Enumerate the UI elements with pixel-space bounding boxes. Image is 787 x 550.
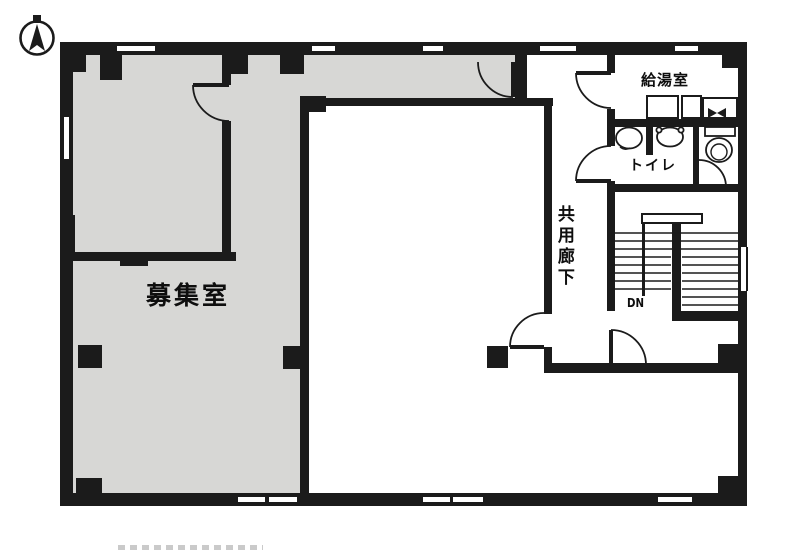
wall-segment — [60, 42, 747, 55]
window-mullion — [450, 495, 453, 504]
vacant-room-entry-strip — [304, 55, 516, 102]
column — [120, 258, 148, 266]
kitchenette-counter — [681, 95, 702, 119]
wall-segment — [544, 106, 552, 314]
wall-segment — [73, 252, 236, 261]
column — [60, 42, 86, 72]
window — [117, 44, 155, 53]
column — [718, 344, 744, 368]
window — [238, 495, 265, 504]
wall-segment — [607, 109, 615, 146]
floorplan-scan: 募集室 給湯室 トイレ 共用廊下 DN — [0, 0, 787, 550]
column — [300, 96, 326, 112]
window — [62, 117, 71, 159]
column — [280, 52, 304, 74]
kitchenette-sink — [702, 97, 738, 119]
stairs-direction-label: DN — [627, 297, 644, 310]
wall-segment — [544, 363, 747, 373]
column — [722, 42, 747, 68]
window — [312, 44, 335, 53]
wall-segment — [60, 493, 747, 506]
stair-divider-wall — [672, 222, 681, 312]
window — [423, 44, 443, 53]
column — [76, 478, 102, 506]
room-label-vacant: 募集室 — [146, 283, 230, 309]
wall-segment — [611, 119, 747, 127]
cropped-caption-remnant — [118, 545, 263, 550]
window — [269, 495, 297, 504]
kitchenette-counter — [646, 95, 679, 119]
wall-segment — [607, 184, 747, 192]
north-compass-icon — [21, 15, 54, 55]
room-label-toilet: トイレ — [629, 159, 677, 174]
wall-segment — [672, 311, 738, 321]
column — [283, 346, 307, 369]
wall-segment — [607, 55, 615, 73]
window — [658, 495, 692, 504]
wall-segment — [222, 121, 231, 260]
column — [78, 345, 102, 368]
wall-segment — [515, 55, 527, 99]
wall-segment — [300, 100, 309, 495]
column — [718, 476, 747, 506]
column — [487, 346, 508, 368]
vacant-room-area — [73, 55, 304, 495]
room-label-kitchenette: 給湯室 — [641, 73, 689, 89]
wall-segment — [300, 98, 553, 106]
column — [100, 52, 122, 80]
stair-handrail — [642, 222, 645, 296]
window — [739, 247, 748, 291]
window — [675, 44, 698, 53]
column — [60, 215, 75, 257]
room-label-corridor: 共用廊下 — [554, 205, 572, 289]
column — [222, 52, 248, 74]
wall-segment — [607, 181, 615, 311]
toilet-partition — [646, 127, 653, 155]
wall-segment — [693, 127, 699, 185]
wall-segment — [60, 42, 73, 506]
window — [423, 495, 483, 504]
window — [540, 44, 576, 53]
